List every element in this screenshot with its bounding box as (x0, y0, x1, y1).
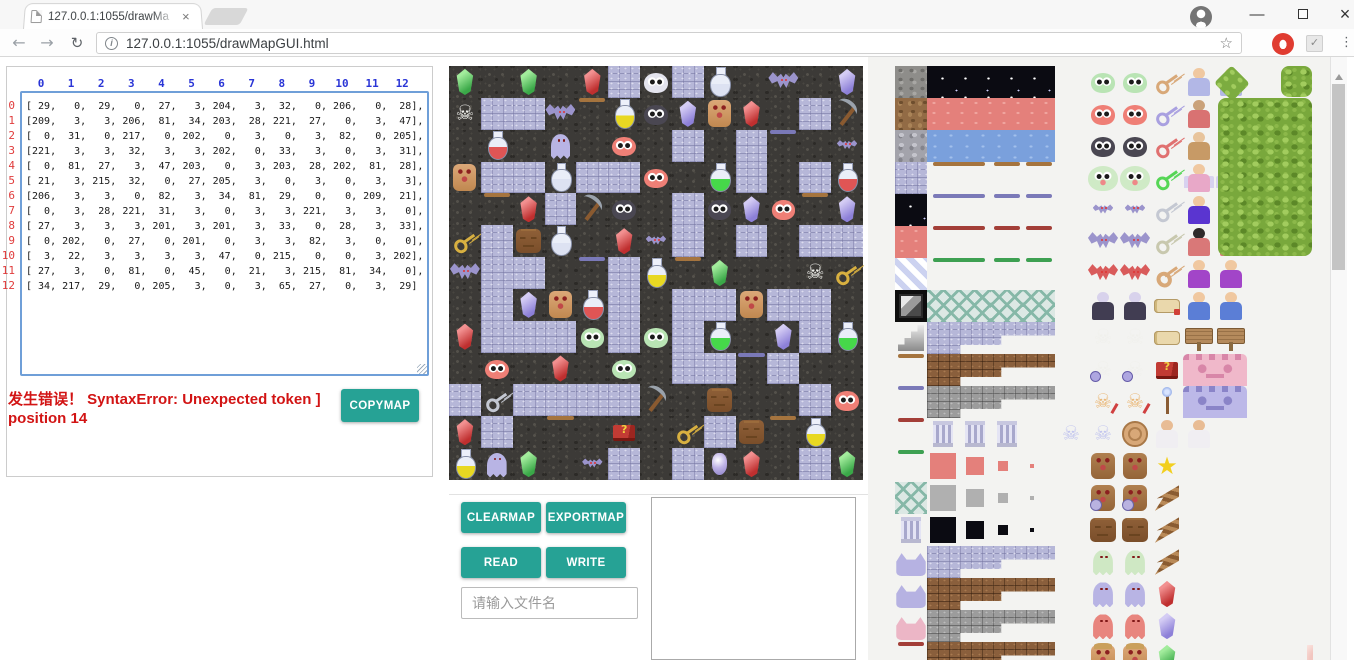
map-tile-path[interactable] (672, 289, 704, 321)
map-tile-slime-black[interactable] (704, 193, 736, 225)
map-tile-gem-green[interactable] (831, 448, 863, 480)
map-tile-path[interactable] (545, 384, 577, 416)
map-tile-path[interactable] (767, 353, 799, 385)
tileset-tile-slime-red[interactable] (1119, 98, 1151, 130)
info-icon[interactable]: i (105, 37, 118, 50)
tileset-tile-rock[interactable] (895, 66, 927, 98)
tileset-tile-door-tan[interactable] (927, 162, 991, 194)
reload-icon[interactable]: ↻ (64, 29, 90, 56)
map-tile-path[interactable] (576, 162, 608, 194)
scrollbar-up-icon[interactable] (1335, 70, 1343, 80)
tileset-tile-pers-vampire[interactable] (1119, 290, 1151, 322)
map-tile-path[interactable] (608, 384, 640, 416)
map-tile-floor[interactable] (736, 66, 768, 98)
scrollbar-thumb[interactable] (1332, 84, 1345, 270)
back-icon[interactable]: ← (6, 29, 32, 56)
map-tile-path[interactable] (545, 321, 577, 353)
tileset-tile-door-red[interactable] (1023, 226, 1055, 258)
map-tile-slime-red[interactable] (640, 162, 672, 194)
map-tile-floor[interactable] (640, 448, 672, 480)
map-tile-door-tan[interactable] (576, 98, 608, 130)
map-tile-path[interactable] (481, 257, 513, 289)
map-tile-gem-green[interactable] (449, 66, 481, 98)
tileset-tile-lattice[interactable] (1023, 290, 1055, 322)
map-tile-path[interactable] (608, 66, 640, 98)
map-tile-floor[interactable] (767, 257, 799, 289)
tileset-tile-lattice[interactable] (927, 290, 991, 322)
map-tile-floor[interactable] (576, 225, 608, 257)
tileset-tile-pers-boy[interactable] (1215, 290, 1247, 322)
map-tile-potion-red[interactable] (831, 162, 863, 194)
map-tile-golem-tan[interactable] (704, 98, 736, 130)
tileset-tile-bat-big[interactable] (1119, 226, 1151, 258)
map-tile-gem-purple[interactable] (513, 289, 545, 321)
map-tile-path[interactable] (704, 416, 736, 448)
map-tile-golem-tan[interactable] (736, 289, 768, 321)
map-tile-path[interactable] (513, 98, 545, 130)
tileset-tile-gem-red[interactable] (1151, 578, 1183, 610)
tileset-tile-pillar[interactable] (991, 418, 1023, 450)
map-tile-path[interactable] (608, 321, 640, 353)
map-tile-floor[interactable] (767, 384, 799, 416)
pink-blob[interactable] (1307, 645, 1313, 660)
map-tile-gem-red[interactable] (736, 98, 768, 130)
map-tile-key-gold[interactable] (449, 225, 481, 257)
map-tile-potion-white[interactable] (704, 66, 736, 98)
map-tile-orb-purple[interactable] (704, 448, 736, 480)
window-close-button[interactable]: × (1322, 0, 1354, 28)
tileset-tile-pers-wizard[interactable] (1183, 194, 1215, 226)
adblock-extension-icon[interactable] (1272, 33, 1294, 55)
map-tile-floor[interactable] (831, 353, 863, 385)
map-tile-pickaxe[interactable] (576, 193, 608, 225)
tileset-tile-skel-warrior[interactable] (1087, 354, 1119, 386)
tileset-tile-step-gray[interactable] (927, 610, 1055, 642)
tileset-tile-step-brown[interactable] (927, 354, 1055, 386)
tileset-tile-gradbox[interactable] (895, 290, 927, 322)
tileset-tile-slime-big[interactable] (1087, 162, 1119, 194)
tileset-tile-door-purple[interactable] (991, 194, 1023, 226)
map-tile-floor[interactable] (576, 130, 608, 162)
tileset-tile-stairs[interactable] (895, 322, 927, 354)
tileset-tile-step-brown[interactable] (927, 578, 1055, 610)
map-tile-gem-red[interactable] (736, 448, 768, 480)
map-tile-path[interactable] (481, 162, 513, 194)
map-tile-potion-red[interactable] (481, 130, 513, 162)
map-tile-gem-purple[interactable] (831, 66, 863, 98)
copymap-button[interactable]: COPYMAP (341, 389, 419, 422)
map-tile-gem-red[interactable] (608, 225, 640, 257)
tileset-tile-wall-purple[interactable] (1183, 386, 1247, 418)
map-tile-path[interactable] (672, 130, 704, 162)
map-tile-floor[interactable] (704, 225, 736, 257)
tileset-tile-pers-boy[interactable] (1183, 290, 1215, 322)
map-tile-floor[interactable] (736, 321, 768, 353)
map-tile-potion-yellow[interactable] (449, 448, 481, 480)
tileset-tile-step-stone[interactable] (927, 322, 1055, 354)
tileset-tile-scroll-ribbon[interactable] (1151, 290, 1183, 322)
map-tile-floor[interactable] (640, 193, 672, 225)
tileset-tile-skeleton[interactable] (1087, 322, 1119, 354)
map-tile-gem-green[interactable] (704, 257, 736, 289)
map-tile-path[interactable] (736, 225, 768, 257)
map-tile-path[interactable] (608, 257, 640, 289)
map-tile-floor[interactable] (640, 130, 672, 162)
tileset-tile-stone-face[interactable] (1119, 514, 1151, 546)
tileset-palette[interactable] (895, 66, 1313, 660)
tileset-tile-stripe[interactable] (895, 258, 927, 290)
map-tile-path[interactable] (608, 448, 640, 480)
tileset-tile-gargoyle[interactable] (895, 578, 927, 610)
map-tile-path[interactable] (672, 321, 704, 353)
tileset-tile-golem-brown[interactable] (1087, 450, 1119, 482)
tileset-tile-door-purple[interactable] (1023, 194, 1055, 226)
tab-close-icon[interactable]: × (182, 10, 190, 23)
map-tile-book-red[interactable] (608, 416, 640, 448)
map-tile-gem-red[interactable] (513, 193, 545, 225)
tileset-tile-golem-hat[interactable] (1119, 642, 1151, 660)
map-tile-slime-green[interactable] (640, 321, 672, 353)
map-tile-door-tan[interactable] (767, 416, 799, 448)
map-tile-floor[interactable] (545, 257, 577, 289)
tileset-tile-skeleton[interactable] (1119, 322, 1151, 354)
tileset-tile-stone-face[interactable] (1087, 514, 1119, 546)
tileset-tile-shrink-red[interactable] (927, 450, 1055, 482)
map-tile-path[interactable] (576, 384, 608, 416)
map-tile-path[interactable] (672, 193, 704, 225)
map-tile-potion-yellow[interactable] (799, 416, 831, 448)
map-tile-floor[interactable] (545, 448, 577, 480)
map-tile-floor[interactable] (449, 130, 481, 162)
map-canvas[interactable] (449, 66, 863, 480)
tileset-tile-scroll[interactable] (1151, 322, 1183, 354)
tileset-tile-band-red[interactable] (927, 98, 1055, 130)
map-tile-key-gold[interactable] (831, 257, 863, 289)
tree-large[interactable] (1218, 98, 1312, 256)
map-tile-floor[interactable] (767, 225, 799, 257)
map-tile-path[interactable] (481, 289, 513, 321)
tileset-tile-bat-small[interactable] (1087, 194, 1119, 226)
map-tile-potion-yellow[interactable] (608, 98, 640, 130)
map-tile-floor[interactable] (704, 130, 736, 162)
map-tile-floor[interactable] (767, 162, 799, 194)
map-tile-floor[interactable] (640, 353, 672, 385)
map-tile-path[interactable] (672, 353, 704, 385)
tileset-tile-pers-vampire[interactable] (1087, 290, 1119, 322)
map-tile-floor[interactable] (545, 66, 577, 98)
tileset-tile-band-blue[interactable] (927, 130, 1055, 162)
map-tile-door-tan[interactable] (545, 416, 577, 448)
map-tile-slime-red[interactable] (767, 193, 799, 225)
tileset-tile-pers-princess[interactable] (1183, 418, 1215, 450)
map-tile-path[interactable] (608, 289, 640, 321)
map-tile-floor[interactable] (767, 98, 799, 130)
map-tile-path[interactable] (799, 448, 831, 480)
tileset-tile-step-stone[interactable] (927, 546, 1055, 578)
tileset-tile-skel-blue[interactable] (1087, 418, 1119, 450)
tileset-tile-bat-big[interactable] (1087, 226, 1119, 258)
tileset-tile-pers-king[interactable] (1183, 258, 1215, 290)
tileset-tile-skel-orange[interactable] (1119, 386, 1151, 418)
tileset-tile-pers-barb[interactable] (1183, 130, 1215, 162)
tileset-tile-door-purple[interactable] (927, 194, 991, 226)
map-tile-floor[interactable] (831, 416, 863, 448)
tileset-tile-door-red[interactable] (895, 642, 927, 660)
map-tile-gem-red[interactable] (576, 66, 608, 98)
map-tile-golem-tan[interactable] (545, 289, 577, 321)
tileset-tile-book-red[interactable] (1151, 354, 1183, 386)
window-minimize-button[interactable]: — (1234, 0, 1280, 28)
map-tile-path[interactable] (608, 162, 640, 194)
map-tile-floor[interactable] (672, 162, 704, 194)
tileset-tile-ghost-green[interactable] (1119, 546, 1151, 578)
map-tile-floor[interactable] (481, 66, 513, 98)
map-tile-floor[interactable] (449, 353, 481, 385)
tileset-tile-ghost-red[interactable] (1087, 610, 1119, 642)
write-button[interactable]: WRITE (546, 547, 626, 578)
map-tile-key-silver[interactable] (481, 384, 513, 416)
map-tile-gem-purple[interactable] (736, 193, 768, 225)
map-tile-path[interactable] (672, 66, 704, 98)
tileset-tile-lattice[interactable] (895, 482, 927, 514)
map-tile-path[interactable] (799, 321, 831, 353)
tileset-tile-bat-small[interactable] (1119, 194, 1151, 226)
map-tile-path[interactable] (799, 98, 831, 130)
map-tile-path[interactable] (672, 448, 704, 480)
map-tile-key-gold[interactable] (672, 416, 704, 448)
map-tile-floor[interactable] (767, 448, 799, 480)
tileset-tile-pers-oldman[interactable] (1183, 66, 1215, 98)
map-tile-stone-face[interactable] (513, 225, 545, 257)
tileset-tile-pillar[interactable] (895, 514, 927, 546)
map-tile-door-purple[interactable] (767, 130, 799, 162)
map-tile-path[interactable] (672, 225, 704, 257)
browser-menu-icon[interactable]: ⋮ (1340, 32, 1352, 54)
tileset-tile-medallion[interactable] (1119, 418, 1151, 450)
map-tile-golem-tan[interactable] (449, 162, 481, 194)
tileset-tile-dirt[interactable] (895, 98, 927, 130)
map-tile-path[interactable] (799, 289, 831, 321)
map-tile-path[interactable] (767, 289, 799, 321)
tileset-tile-ghost-red[interactable] (1119, 610, 1151, 642)
tileset-tile-night[interactable] (927, 66, 1055, 98)
map-tile-door-purple[interactable] (576, 257, 608, 289)
tileset-tile-golem-hat[interactable] (1087, 642, 1119, 660)
bush-diamond[interactable] (1217, 69, 1247, 97)
tileset-tile-shrink-gray[interactable] (927, 482, 1055, 514)
tileset-tile-wing-staff[interactable] (1151, 482, 1183, 514)
map-tile-potion-yellow[interactable] (640, 257, 672, 289)
map-tile-door-tan[interactable] (481, 193, 513, 225)
map-tile-skeleton[interactable] (799, 257, 831, 289)
map-tile-path[interactable] (704, 289, 736, 321)
tileset-tile-door-green[interactable] (927, 258, 991, 290)
map-tile-door-tan[interactable] (672, 257, 704, 289)
map-tile-path[interactable] (513, 384, 545, 416)
map-tile-slime-green[interactable] (576, 321, 608, 353)
map-tile-floor[interactable] (513, 353, 545, 385)
tileset-tile-ghost-purple[interactable] (1119, 578, 1151, 610)
tileset-tile-wall-pink[interactable] (1183, 354, 1247, 386)
tileset-tile-ghost-purple[interactable] (1087, 578, 1119, 610)
map-tile-gem-green[interactable] (513, 448, 545, 480)
map-tile-path[interactable] (481, 225, 513, 257)
checkbox-extension-icon[interactable]: ✓ (1306, 35, 1323, 52)
map-tile-path[interactable] (799, 162, 831, 194)
tileset-tile-slime-black[interactable] (1087, 130, 1119, 162)
map-tile-floor[interactable] (799, 353, 831, 385)
tileset-tile-skel-blue[interactable] (1055, 418, 1087, 450)
profile-icon[interactable] (1190, 6, 1212, 28)
tileset-tile-bat-red[interactable] (1119, 258, 1151, 290)
tileset-tile-pers-dwarf[interactable] (1183, 98, 1215, 130)
tileset-tile-slime-black[interactable] (1119, 130, 1151, 162)
map-tile-path[interactable] (704, 353, 736, 385)
tileset-tile-lattice[interactable] (991, 290, 1023, 322)
map-tile-stone-face[interactable] (704, 384, 736, 416)
map-tile-floor[interactable] (799, 66, 831, 98)
tileset-tile-gem-green[interactable] (1151, 642, 1183, 660)
map-tile-floor[interactable] (736, 257, 768, 289)
map-tile-floor[interactable] (513, 416, 545, 448)
tileset-tile-pillar[interactable] (927, 418, 959, 450)
tileset-tile-door-tan[interactable] (991, 162, 1023, 194)
map-tile-slime-red[interactable] (608, 130, 640, 162)
map-tile-gem-purple[interactable] (767, 321, 799, 353)
map-tile-pickaxe[interactable] (831, 98, 863, 130)
map-tile-floor[interactable] (576, 416, 608, 448)
tileset-tile-door-green[interactable] (895, 450, 927, 482)
forward-icon[interactable]: → (34, 29, 60, 56)
tileset-tile-door-tan[interactable] (895, 354, 927, 386)
map-tile-path[interactable] (736, 162, 768, 194)
tileset-tile-golem-brown[interactable] (1119, 450, 1151, 482)
tileset-tile-door-purple[interactable] (895, 386, 927, 418)
tileset-tile-shrink-night[interactable] (927, 514, 1055, 546)
tileset-tile-signpost[interactable] (1183, 322, 1215, 354)
map-tile-bat-big[interactable] (449, 257, 481, 289)
map-tile-door-purple[interactable] (736, 353, 768, 385)
tileset-tile-door-red[interactable] (927, 226, 991, 258)
tileset-tile-door-red[interactable] (991, 226, 1023, 258)
read-button[interactable]: READ (461, 547, 541, 578)
exportmap-button[interactable]: EXPORTMAP (546, 502, 626, 533)
tileset-tile-pers-princess[interactable] (1151, 418, 1183, 450)
tileset-tile-skel-orange[interactable] (1087, 386, 1119, 418)
map-tile-path[interactable] (545, 193, 577, 225)
tileset-tile-wing-staff[interactable] (1151, 514, 1183, 546)
map-tile-floor[interactable] (640, 416, 672, 448)
tileset-tile-step-gray[interactable] (927, 386, 1055, 418)
tileset-tile-bat-red[interactable] (1087, 258, 1119, 290)
textarea-resize-handle[interactable] (417, 364, 427, 374)
map-tile-path[interactable] (481, 321, 513, 353)
tileset-tile-ghost-green[interactable] (1087, 546, 1119, 578)
tileset-tile-door-tan[interactable] (1023, 162, 1055, 194)
map-tile-door-tan[interactable] (799, 193, 831, 225)
tileset-tile-redtile[interactable] (895, 226, 927, 258)
tileset-tile-skel-warrior[interactable] (1119, 354, 1151, 386)
map-tile-slime-green[interactable] (608, 353, 640, 385)
map-tile-bat-small[interactable] (831, 130, 863, 162)
map-tile-path[interactable] (513, 257, 545, 289)
tileset-tile-pers-fairy[interactable] (1183, 162, 1215, 194)
tileset-tile-door-red[interactable] (895, 418, 927, 450)
tileset-tile-pers-priest[interactable] (1183, 226, 1215, 258)
tileset-tile-step-brown[interactable] (927, 642, 1055, 660)
tileset-tile-slime-green[interactable] (1119, 66, 1151, 98)
map-tile-floor[interactable] (640, 289, 672, 321)
tileset-tile-slime-green[interactable] (1087, 66, 1119, 98)
tileset-tile-gargoyle-pink[interactable] (895, 610, 927, 642)
map-tile-path[interactable] (449, 384, 481, 416)
tileset-tile-pillar[interactable] (959, 418, 991, 450)
map-tile-floor[interactable] (831, 289, 863, 321)
browser-tab[interactable]: 127.0.0.1:1055/drawMa × (23, 3, 203, 29)
tileset-tile-gargoyle[interactable] (895, 546, 927, 578)
map-tile-potion-green[interactable] (704, 321, 736, 353)
map-tile-path[interactable] (481, 416, 513, 448)
map-tile-potion-green[interactable] (704, 162, 736, 194)
map-tile-ghost-purple[interactable] (481, 448, 513, 480)
map-tile-path[interactable] (481, 98, 513, 130)
url-text[interactable]: 127.0.0.1:1055/drawMapGUI.html (126, 36, 1212, 51)
map-tile-skeleton[interactable] (449, 98, 481, 130)
map-tile-potion-green[interactable] (831, 321, 863, 353)
map-tile-slime-black[interactable] (608, 193, 640, 225)
map-tile-gem-red[interactable] (449, 321, 481, 353)
tileset-tile-golem-warrior[interactable] (1119, 482, 1151, 514)
map-tile-floor[interactable] (576, 353, 608, 385)
map-tile-bat-small[interactable] (576, 448, 608, 480)
tileset-tile-slime-big[interactable] (1119, 162, 1151, 194)
map-tile-bat-big[interactable] (767, 66, 799, 98)
map-tile-gem-green[interactable] (513, 66, 545, 98)
map-tile-potion-red[interactable] (576, 289, 608, 321)
map-tile-pickaxe[interactable] (640, 384, 672, 416)
tileset-tile-stone[interactable] (895, 130, 927, 162)
clearmap-button[interactable]: CLEARMAP (461, 502, 541, 533)
bookmark-star-icon[interactable]: ☆ (1220, 34, 1233, 52)
tileset-tile-signpost[interactable] (1215, 322, 1247, 354)
map-tile-potion-white[interactable] (545, 162, 577, 194)
map-tile-gem-red[interactable] (545, 353, 577, 385)
tree-square[interactable] (1281, 66, 1312, 97)
window-restore-button[interactable] (1280, 0, 1326, 28)
matrix-textarea[interactable] (20, 91, 429, 376)
tileset-tile-pers-king[interactable] (1215, 258, 1247, 290)
map-tile-gem-purple[interactable] (831, 193, 863, 225)
map-tile-floor[interactable] (736, 384, 768, 416)
map-tile-bat-big[interactable] (545, 98, 577, 130)
map-tile-path[interactable] (799, 384, 831, 416)
tileset-tile-star-yellow[interactable] (1151, 450, 1183, 482)
map-tile-path[interactable] (513, 321, 545, 353)
map-tile-slime-black[interactable] (640, 98, 672, 130)
tileset-tile-key-axe[interactable] (1151, 258, 1183, 290)
map-tile-ghost-purple[interactable] (545, 130, 577, 162)
map-tile-path[interactable] (799, 225, 831, 257)
map-tile-path[interactable] (513, 162, 545, 194)
tileset-tile-wing-staff[interactable] (1151, 546, 1183, 578)
tileset-tile-staff[interactable] (1151, 386, 1183, 418)
map-tile-floor[interactable] (799, 130, 831, 162)
map-tile-floor[interactable] (513, 130, 545, 162)
map-tile-slime-red[interactable] (831, 384, 863, 416)
tileset-tile-gem-purple[interactable] (1151, 610, 1183, 642)
map-tile-stone-face[interactable] (736, 416, 768, 448)
tileset-tile-door-green[interactable] (991, 258, 1023, 290)
